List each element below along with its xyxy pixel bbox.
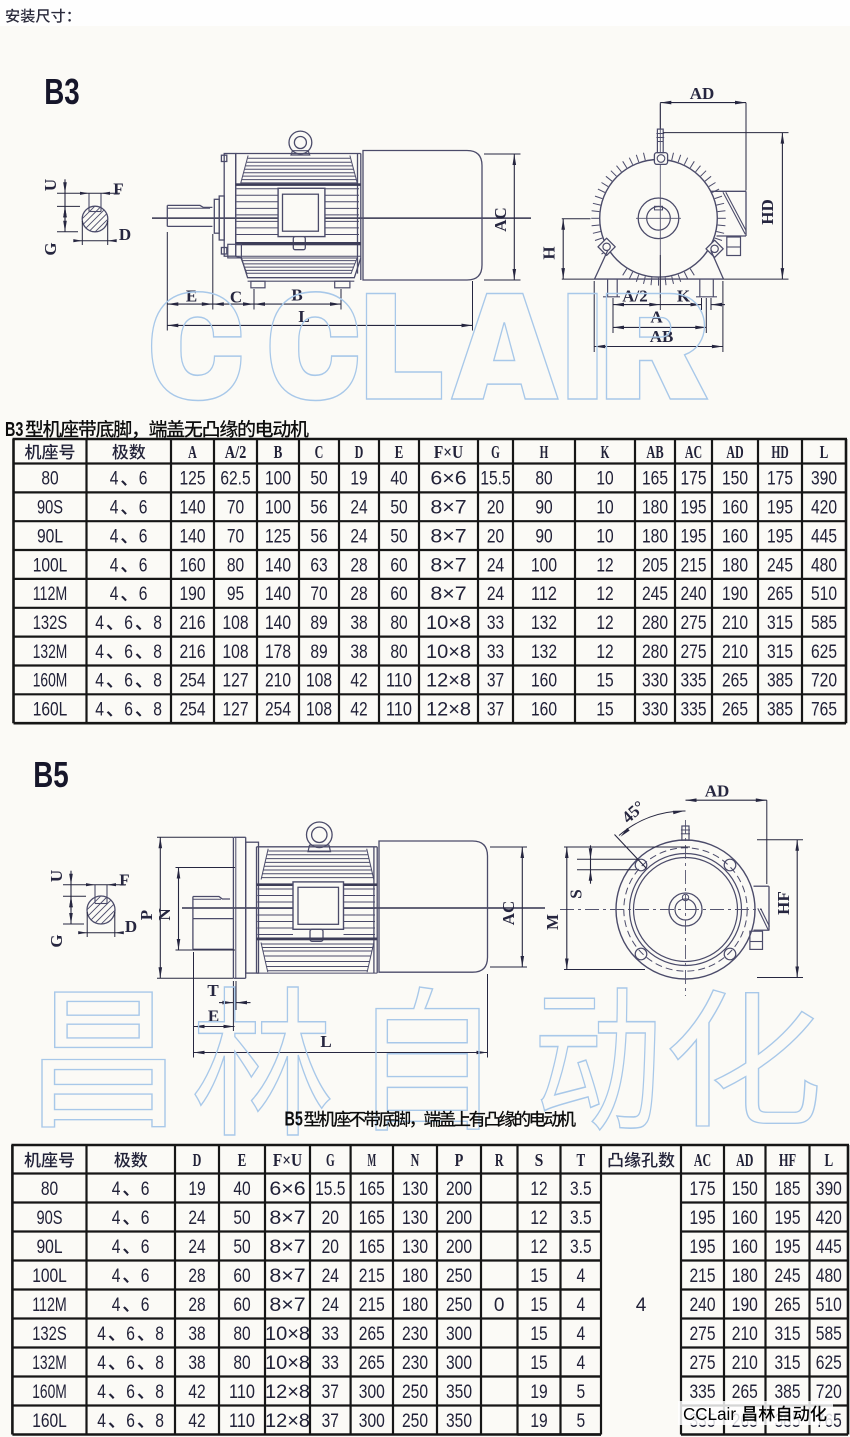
svg-text:190: 190	[722, 584, 748, 605]
svg-text:12: 12	[596, 642, 613, 663]
svg-text:4: 4	[97, 1324, 106, 1345]
svg-text:8×7: 8×7	[430, 555, 466, 576]
svg-text:275: 275	[681, 642, 707, 663]
svg-text:T: T	[576, 1150, 585, 1170]
svg-text:R: R	[495, 1150, 504, 1170]
svg-text:765: 765	[811, 700, 837, 721]
svg-text:150: 150	[722, 469, 748, 490]
svg-text:110: 110	[229, 1411, 255, 1432]
svg-text:6: 6	[124, 671, 133, 692]
svg-text:8×7: 8×7	[269, 1237, 305, 1258]
svg-text:625: 625	[816, 1353, 842, 1374]
svg-text:4: 4	[112, 1266, 121, 1287]
svg-text:100: 100	[531, 555, 557, 576]
svg-text:132M: 132M	[33, 642, 68, 663]
svg-text:HD: HD	[771, 442, 788, 462]
svg-text:HD: HD	[758, 199, 777, 225]
svg-text:F×U: F×U	[273, 1150, 302, 1170]
svg-text:275: 275	[690, 1324, 716, 1345]
svg-text:24: 24	[350, 526, 368, 547]
svg-text:112: 112	[531, 584, 557, 605]
svg-text:33: 33	[322, 1324, 339, 1345]
svg-text:AC: AC	[491, 207, 510, 232]
svg-text:20: 20	[487, 498, 504, 519]
svg-text:B: B	[274, 442, 283, 462]
svg-text:160: 160	[722, 526, 748, 547]
svg-text:15: 15	[530, 1295, 547, 1316]
svg-text:127: 127	[223, 700, 249, 721]
svg-text:245: 245	[775, 1266, 801, 1287]
svg-text:AD: AD	[726, 442, 743, 462]
svg-text:330: 330	[642, 700, 668, 721]
svg-text:132: 132	[531, 642, 557, 663]
svg-text:10: 10	[596, 469, 613, 490]
svg-text:A/2: A/2	[622, 287, 648, 306]
svg-text:42: 42	[188, 1411, 205, 1432]
svg-text:80: 80	[233, 1324, 250, 1345]
svg-text:160L: 160L	[33, 700, 68, 721]
svg-text:38: 38	[188, 1353, 205, 1374]
svg-text:70: 70	[227, 526, 244, 547]
svg-text:6: 6	[141, 1295, 150, 1316]
svg-text:4: 4	[110, 584, 119, 605]
svg-text:215: 215	[681, 555, 707, 576]
svg-text:U: U	[41, 179, 60, 191]
svg-text:4: 4	[112, 1295, 121, 1316]
svg-text:195: 195	[775, 1237, 801, 1258]
svg-text:G: G	[47, 934, 66, 947]
svg-text:4: 4	[95, 700, 104, 721]
svg-text:125: 125	[265, 526, 291, 547]
svg-text:112M: 112M	[32, 1295, 67, 1316]
svg-text:15: 15	[530, 1324, 547, 1345]
svg-text:4: 4	[95, 613, 104, 634]
svg-text:AB: AB	[646, 442, 663, 462]
svg-text:100: 100	[265, 469, 291, 490]
svg-text:6: 6	[139, 526, 148, 547]
svg-text:12×8: 12×8	[265, 1411, 310, 1432]
svg-text:265: 265	[359, 1353, 385, 1374]
svg-text:B3: B3	[44, 71, 79, 112]
svg-text:L: L	[820, 442, 829, 462]
svg-text:385: 385	[767, 700, 793, 721]
svg-text:254: 254	[180, 700, 206, 721]
svg-text:80: 80	[390, 642, 407, 663]
svg-text:335: 335	[681, 700, 707, 721]
svg-text:100L: 100L	[32, 1266, 67, 1287]
svg-text:8×7: 8×7	[269, 1295, 305, 1316]
svg-text:240: 240	[681, 584, 707, 605]
svg-text:D: D	[355, 442, 364, 462]
svg-text:33: 33	[322, 1353, 339, 1374]
svg-text:E: E	[208, 1007, 219, 1026]
svg-text:19: 19	[530, 1382, 547, 1403]
svg-text:8: 8	[155, 1324, 164, 1345]
svg-text:C: C	[230, 288, 242, 307]
svg-text:40: 40	[390, 469, 407, 490]
svg-text:28: 28	[350, 555, 367, 576]
svg-text:56: 56	[310, 526, 327, 547]
svg-text:B5: B5	[285, 1108, 303, 1131]
svg-text:15.5: 15.5	[315, 1179, 345, 1200]
svg-text:L: L	[320, 1032, 331, 1051]
svg-text:4: 4	[576, 1295, 585, 1316]
svg-text:215: 215	[690, 1266, 716, 1287]
svg-text:132S: 132S	[32, 1324, 67, 1345]
svg-text:12: 12	[530, 1179, 547, 1200]
svg-text:70: 70	[227, 498, 244, 519]
svg-text:300: 300	[359, 1411, 385, 1432]
svg-text:10: 10	[596, 498, 613, 519]
svg-text:390: 390	[816, 1179, 842, 1200]
svg-text:4: 4	[110, 526, 119, 547]
svg-text:N: N	[155, 908, 174, 921]
svg-text:24: 24	[487, 584, 505, 605]
svg-text:24: 24	[322, 1266, 340, 1287]
svg-text:315: 315	[767, 613, 793, 634]
svg-text:265: 265	[722, 671, 748, 692]
svg-text:37: 37	[487, 671, 504, 692]
svg-text:4: 4	[97, 1353, 106, 1374]
svg-text:160M: 160M	[32, 1382, 67, 1403]
svg-text:265: 265	[767, 584, 793, 605]
svg-text:15: 15	[596, 671, 613, 692]
svg-text:420: 420	[811, 498, 837, 519]
svg-text:12: 12	[530, 1237, 547, 1258]
svg-text:185: 185	[775, 1179, 801, 1200]
svg-text:180: 180	[642, 526, 668, 547]
svg-text:300: 300	[446, 1324, 472, 1345]
svg-text:200: 200	[446, 1208, 472, 1229]
svg-text:160: 160	[531, 671, 557, 692]
svg-text:4: 4	[576, 1353, 585, 1374]
svg-text:90: 90	[535, 526, 552, 547]
svg-text:240: 240	[690, 1295, 716, 1316]
svg-text:195: 195	[775, 1208, 801, 1229]
svg-text:4: 4	[576, 1324, 585, 1345]
svg-text:M: M	[543, 914, 562, 930]
svg-text:12×8: 12×8	[426, 671, 471, 692]
svg-text:110: 110	[386, 671, 412, 692]
svg-text:D: D	[125, 917, 137, 936]
svg-text:M: M	[367, 1150, 376, 1170]
svg-text:585: 585	[811, 613, 837, 634]
svg-text:U: U	[47, 870, 66, 882]
svg-text:720: 720	[816, 1382, 842, 1403]
svg-text:6: 6	[126, 1353, 135, 1374]
svg-text:CCLair: CCLair	[683, 1404, 736, 1424]
svg-text:195: 195	[690, 1237, 716, 1258]
svg-text:140: 140	[180, 526, 206, 547]
svg-text:8: 8	[153, 700, 162, 721]
svg-text:60: 60	[233, 1295, 250, 1316]
svg-text:130: 130	[402, 1237, 428, 1258]
svg-text:38: 38	[188, 1324, 205, 1345]
svg-text:300: 300	[359, 1382, 385, 1403]
svg-text:6: 6	[124, 642, 133, 663]
svg-text:15.5: 15.5	[480, 469, 510, 490]
svg-text:315: 315	[775, 1324, 801, 1345]
svg-text:4: 4	[110, 469, 119, 490]
svg-text:160: 160	[722, 498, 748, 519]
svg-text:315: 315	[767, 642, 793, 663]
svg-text:5: 5	[576, 1382, 585, 1403]
svg-text:6: 6	[139, 469, 148, 490]
svg-text:130: 130	[402, 1179, 428, 1200]
svg-text:C: C	[315, 442, 324, 462]
svg-text:6: 6	[126, 1324, 135, 1345]
svg-text:335: 335	[690, 1382, 716, 1403]
svg-text:T: T	[207, 981, 219, 1000]
svg-text:200: 200	[446, 1237, 472, 1258]
svg-text:210: 210	[732, 1353, 758, 1374]
svg-text:6: 6	[141, 1179, 150, 1200]
svg-text:6: 6	[141, 1266, 150, 1287]
svg-text:K: K	[601, 442, 610, 462]
svg-text:245: 245	[642, 584, 668, 605]
svg-text:90S: 90S	[37, 1208, 63, 1229]
svg-text:480: 480	[816, 1266, 842, 1287]
svg-text:132S: 132S	[33, 613, 68, 634]
svg-text:F: F	[119, 871, 129, 890]
svg-text:N: N	[411, 1150, 420, 1170]
svg-text:6: 6	[124, 613, 133, 634]
svg-text:37: 37	[487, 700, 504, 721]
svg-text:4: 4	[95, 671, 104, 692]
svg-text:110: 110	[229, 1382, 255, 1403]
svg-text:8×7: 8×7	[269, 1208, 305, 1229]
svg-text:24: 24	[350, 498, 368, 519]
svg-text:HF: HF	[774, 891, 793, 915]
svg-text:50: 50	[233, 1237, 250, 1258]
svg-text:210: 210	[722, 642, 748, 663]
svg-text:6: 6	[124, 700, 133, 721]
svg-text:180: 180	[732, 1266, 758, 1287]
svg-text:160M: 160M	[33, 671, 68, 692]
svg-text:330: 330	[642, 671, 668, 692]
svg-text:230: 230	[402, 1324, 428, 1345]
svg-text:108: 108	[223, 642, 249, 663]
svg-text:62.5: 62.5	[220, 469, 250, 490]
svg-text:230: 230	[402, 1353, 428, 1374]
svg-text:254: 254	[180, 671, 206, 692]
svg-text:210: 210	[265, 671, 291, 692]
svg-text:420: 420	[816, 1208, 842, 1229]
svg-text:6: 6	[139, 555, 148, 576]
svg-text:15: 15	[530, 1353, 547, 1374]
svg-text:HF: HF	[779, 1150, 796, 1170]
svg-text:6×6: 6×6	[430, 469, 466, 490]
svg-text:160: 160	[732, 1237, 758, 1258]
svg-text:50: 50	[390, 526, 407, 547]
svg-text:385: 385	[775, 1382, 801, 1403]
svg-text:150: 150	[732, 1179, 758, 1200]
svg-text:80: 80	[535, 469, 552, 490]
svg-text:24: 24	[188, 1237, 206, 1258]
svg-text:10×8: 10×8	[265, 1324, 310, 1345]
svg-text:50: 50	[233, 1208, 250, 1229]
svg-text:12: 12	[596, 613, 613, 634]
svg-text:42: 42	[188, 1382, 205, 1403]
svg-text:108: 108	[306, 671, 332, 692]
svg-text:216: 216	[180, 613, 206, 634]
svg-text:275: 275	[681, 613, 707, 634]
svg-text:10×8: 10×8	[426, 642, 471, 663]
svg-text:12×8: 12×8	[426, 700, 471, 721]
svg-text:216: 216	[180, 642, 206, 663]
svg-text:8: 8	[155, 1382, 164, 1403]
svg-text:40: 40	[233, 1179, 250, 1200]
svg-text:56: 56	[310, 498, 327, 519]
svg-text:F: F	[113, 180, 123, 199]
svg-text:80: 80	[41, 1179, 58, 1200]
svg-text:F×U: F×U	[434, 442, 463, 462]
svg-text:112M: 112M	[33, 584, 68, 605]
svg-text:4: 4	[110, 555, 119, 576]
svg-text:3.5: 3.5	[570, 1179, 592, 1200]
svg-text:132: 132	[531, 613, 557, 634]
svg-text:4: 4	[97, 1411, 106, 1432]
svg-text:19: 19	[188, 1179, 205, 1200]
svg-text:215: 215	[359, 1295, 385, 1316]
svg-text:6: 6	[126, 1382, 135, 1403]
svg-text:215: 215	[359, 1266, 385, 1287]
svg-text:6: 6	[139, 584, 148, 605]
svg-text:445: 445	[811, 526, 837, 547]
svg-text:AD: AD	[705, 782, 730, 801]
svg-text:180: 180	[402, 1295, 428, 1316]
svg-text:G: G	[491, 442, 500, 462]
svg-text:60: 60	[390, 584, 407, 605]
svg-text:180: 180	[722, 555, 748, 576]
svg-text:175: 175	[767, 469, 793, 490]
svg-text:195: 195	[681, 526, 707, 547]
svg-text:AC: AC	[685, 442, 702, 462]
svg-text:90L: 90L	[37, 526, 63, 547]
svg-text:140: 140	[265, 555, 291, 576]
svg-text:E: E	[186, 287, 197, 306]
svg-text:195: 195	[681, 498, 707, 519]
svg-text:350: 350	[446, 1382, 472, 1403]
svg-text:L: L	[298, 307, 309, 326]
svg-text:38: 38	[350, 642, 367, 663]
svg-text:42: 42	[350, 671, 367, 692]
svg-text:190: 190	[732, 1295, 758, 1316]
svg-text:24: 24	[322, 1295, 340, 1316]
svg-text:4: 4	[636, 1295, 647, 1316]
svg-text:12×8: 12×8	[265, 1382, 310, 1403]
svg-text:28: 28	[188, 1295, 205, 1316]
svg-text:265: 265	[359, 1324, 385, 1345]
svg-text:28: 28	[188, 1266, 205, 1287]
svg-text:140: 140	[265, 613, 291, 634]
svg-text:140: 140	[180, 498, 206, 519]
svg-text:265: 265	[732, 1382, 758, 1403]
svg-text:195: 195	[767, 498, 793, 519]
svg-text:335: 335	[681, 671, 707, 692]
svg-text:AC: AC	[499, 901, 518, 926]
svg-text:160: 160	[732, 1208, 758, 1229]
svg-text:50: 50	[310, 469, 327, 490]
svg-text:195: 195	[690, 1208, 716, 1229]
svg-text:19: 19	[530, 1411, 547, 1432]
svg-text:20: 20	[322, 1208, 339, 1229]
svg-text:175: 175	[681, 469, 707, 490]
svg-text:63: 63	[310, 555, 327, 576]
svg-text:10×8: 10×8	[265, 1353, 310, 1374]
svg-text:3.5: 3.5	[570, 1208, 592, 1229]
svg-text:180: 180	[402, 1266, 428, 1287]
svg-text:8×7: 8×7	[269, 1266, 305, 1287]
svg-text:AC: AC	[694, 1150, 711, 1170]
svg-text:S: S	[567, 889, 586, 898]
svg-text:6×6: 6×6	[269, 1179, 305, 1200]
svg-text:275: 275	[690, 1353, 716, 1374]
svg-text:445: 445	[816, 1237, 842, 1258]
svg-text:6: 6	[139, 498, 148, 519]
svg-text:G: G	[326, 1150, 335, 1170]
svg-text:178: 178	[265, 642, 291, 663]
svg-text:38: 38	[350, 613, 367, 634]
svg-text:E: E	[238, 1150, 247, 1170]
svg-text:L: L	[824, 1150, 833, 1170]
svg-text:0: 0	[494, 1295, 505, 1316]
svg-text:210: 210	[732, 1324, 758, 1345]
svg-text:37: 37	[322, 1411, 339, 1432]
svg-text:S: S	[535, 1150, 544, 1170]
svg-text:8: 8	[153, 671, 162, 692]
svg-text:15: 15	[596, 700, 613, 721]
svg-text:15: 15	[530, 1266, 547, 1287]
svg-text:110: 110	[386, 700, 412, 721]
svg-text:80: 80	[41, 469, 58, 490]
svg-text:3.5: 3.5	[570, 1237, 592, 1258]
svg-text:160L: 160L	[32, 1411, 67, 1432]
svg-text:4: 4	[112, 1179, 121, 1200]
svg-text:265: 265	[775, 1295, 801, 1316]
svg-text:245: 245	[767, 555, 793, 576]
svg-text:8: 8	[153, 642, 162, 663]
svg-text:300: 300	[446, 1353, 472, 1374]
svg-text:6: 6	[126, 1411, 135, 1432]
svg-text:720: 720	[811, 671, 837, 692]
svg-text:195: 195	[767, 526, 793, 547]
svg-text:125: 125	[180, 469, 206, 490]
svg-text:250: 250	[446, 1295, 472, 1316]
svg-text:12: 12	[596, 555, 613, 576]
svg-text:19: 19	[350, 469, 367, 490]
svg-text:B5: B5	[33, 754, 68, 795]
svg-text:90L: 90L	[37, 1237, 63, 1258]
svg-text:90: 90	[535, 498, 552, 519]
svg-text:80: 80	[227, 555, 244, 576]
svg-text:160: 160	[531, 700, 557, 721]
svg-text:350: 350	[446, 1411, 472, 1432]
svg-text:8: 8	[155, 1353, 164, 1374]
svg-text:205: 205	[642, 555, 668, 576]
svg-text:60: 60	[233, 1266, 250, 1287]
svg-text:250: 250	[446, 1266, 472, 1287]
svg-text:P: P	[455, 1150, 464, 1170]
svg-text:AD: AD	[690, 84, 715, 103]
svg-text:89: 89	[310, 613, 327, 634]
svg-text:5: 5	[576, 1411, 585, 1432]
svg-text:8: 8	[155, 1411, 164, 1432]
svg-text:8×7: 8×7	[430, 526, 466, 547]
svg-text:175: 175	[690, 1179, 716, 1200]
svg-text:165: 165	[359, 1237, 385, 1258]
svg-text:70: 70	[310, 584, 327, 605]
